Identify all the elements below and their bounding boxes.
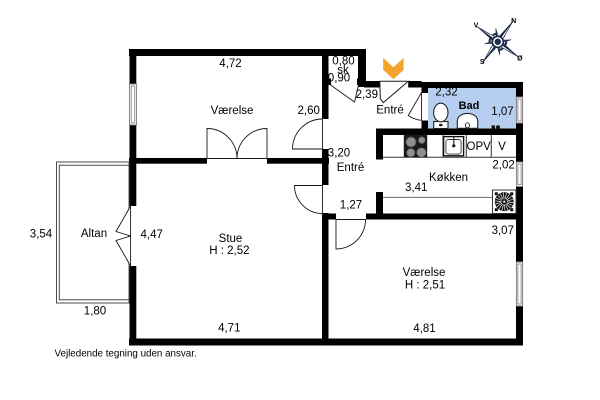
svg-text:Entré: Entré <box>376 105 404 117</box>
svg-text:3,41: 3,41 <box>405 182 427 194</box>
svg-text:S: S <box>480 59 485 66</box>
svg-text:V: V <box>498 141 506 153</box>
svg-text:1,27: 1,27 <box>340 200 362 212</box>
svg-text:1,07: 1,07 <box>491 106 513 118</box>
svg-text:Værelse: Værelse <box>403 267 446 279</box>
svg-text:Værelse: Værelse <box>211 105 254 117</box>
svg-text:3,54: 3,54 <box>30 229 53 241</box>
svg-text:Køkken: Køkken <box>429 172 468 184</box>
svg-text:0,90: 0,90 <box>328 73 350 85</box>
svg-text:3,20: 3,20 <box>328 147 350 159</box>
svg-text:3,07: 3,07 <box>492 225 514 237</box>
svg-text:1,80: 1,80 <box>84 306 106 318</box>
svg-text:V: V <box>474 23 479 30</box>
svg-text:Altan: Altan <box>81 228 107 240</box>
svg-text:2,39: 2,39 <box>356 89 378 101</box>
svg-text:4,81: 4,81 <box>413 323 435 335</box>
svg-text:2,02: 2,02 <box>492 160 514 172</box>
svg-text:Vejledende tegning uden ansvar: Vejledende tegning uden ansvar. <box>55 349 197 360</box>
svg-text:Stue: Stue <box>219 233 243 245</box>
svg-text:4,72: 4,72 <box>219 58 241 70</box>
svg-text:N: N <box>511 18 516 25</box>
svg-text:4,71: 4,71 <box>218 322 240 334</box>
svg-text:2,60: 2,60 <box>298 105 320 117</box>
svg-text:Entré: Entré <box>337 162 365 174</box>
svg-text:Bad: Bad <box>459 100 480 112</box>
svg-text:H : 2,52: H : 2,52 <box>209 245 249 257</box>
svg-text:H : 2,51: H : 2,51 <box>405 279 445 291</box>
svg-text:2,32: 2,32 <box>435 87 457 99</box>
svg-text:4,47: 4,47 <box>141 229 163 241</box>
svg-text:OPV: OPV <box>467 141 492 153</box>
svg-text:Ø: Ø <box>517 56 523 63</box>
